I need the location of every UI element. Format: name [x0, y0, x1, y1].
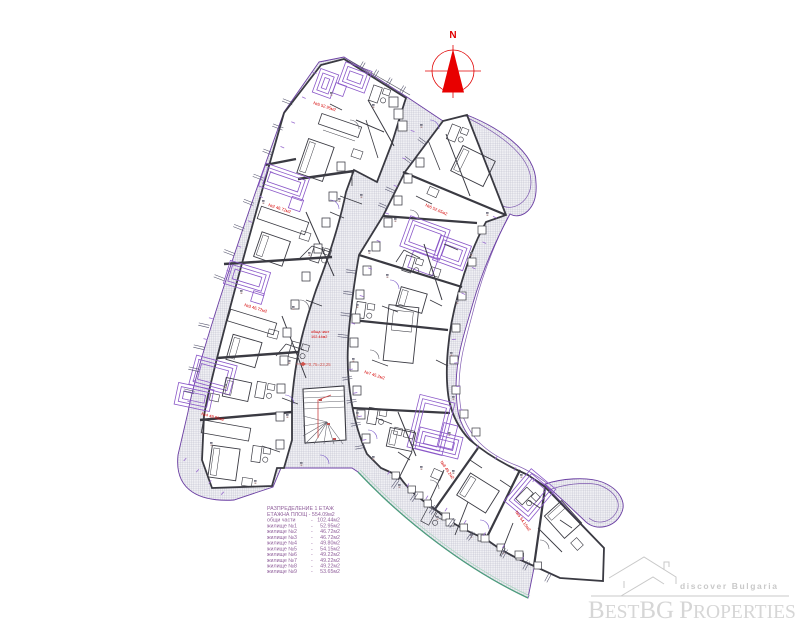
svg-text:53.65м2: 53.65м2 — [320, 569, 340, 575]
svg-text:discover Bulgaria: discover Bulgaria — [680, 581, 779, 591]
svg-text:жилище №9: жилище №9 — [267, 569, 297, 575]
svg-text:N: N — [449, 30, 456, 41]
svg-text:2,75=23,25: 2,75=23,25 — [309, 362, 331, 367]
svg-text:обща част: обща част — [311, 330, 330, 334]
svg-text:102.44м2: 102.44м2 — [311, 335, 327, 339]
svg-text:-: - — [311, 569, 313, 575]
svg-text:BESTBG PROPERTIES: BESTBG PROPERTIES — [588, 597, 796, 624]
